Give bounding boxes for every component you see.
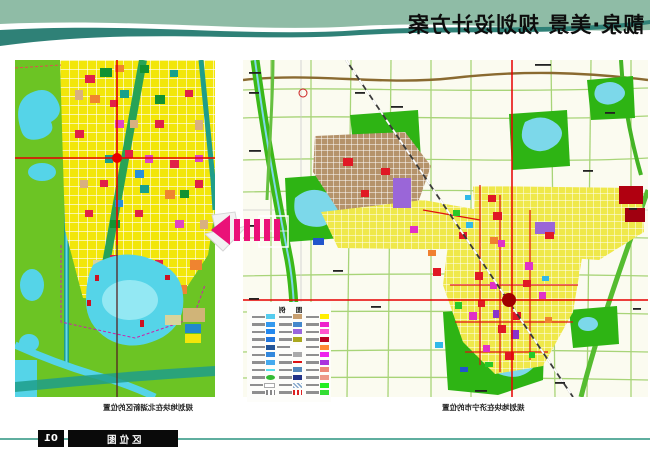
legend-entry <box>303 390 329 395</box>
legend-entry <box>276 322 302 327</box>
legend-label-bar <box>252 376 265 379</box>
legend-swatch <box>266 322 275 327</box>
legend-entry <box>303 352 329 357</box>
legend-label-bar <box>306 354 319 357</box>
transfer-arrow-icon <box>203 210 291 252</box>
legend-entry <box>249 390 275 395</box>
legend-label-bar <box>306 346 319 349</box>
legend-swatch <box>320 383 329 388</box>
legend-entry <box>249 345 275 350</box>
legend-row <box>247 313 331 321</box>
legend-rows <box>247 313 331 397</box>
legend-entry <box>249 352 275 357</box>
right-map-caption: 规划地块在济宁市的位置 <box>408 402 558 413</box>
legend-label-bar <box>279 323 292 326</box>
right-map-target-dot <box>502 293 516 307</box>
legend-label-bar <box>252 331 265 334</box>
legend-label-bar <box>252 323 265 326</box>
legend-row <box>247 389 331 397</box>
legend-entry <box>303 360 329 365</box>
legend-swatch <box>266 345 275 350</box>
legend-label-bar <box>306 361 319 364</box>
legend-row <box>247 343 331 351</box>
legend-entry <box>249 322 275 327</box>
legend-label-bar <box>306 338 319 341</box>
legend-row <box>247 321 331 329</box>
legend-swatch <box>293 375 302 380</box>
legend-label-bar <box>279 354 292 357</box>
section-title-badge: 区位图 <box>68 430 178 447</box>
legend-entry <box>276 314 302 319</box>
legend-title: 图 例 <box>247 302 331 313</box>
legend-label-bar <box>306 376 319 379</box>
legend-swatch <box>293 314 302 319</box>
legend-label-bar <box>306 323 319 326</box>
legend-entry <box>249 383 275 388</box>
legend-row <box>247 366 331 374</box>
legend-entry <box>303 322 329 327</box>
legend-label-bar <box>252 361 265 364</box>
legend-label-bar <box>277 346 290 349</box>
legend-entry <box>249 337 275 342</box>
legend-entry <box>303 367 329 372</box>
legend-swatch <box>266 375 275 380</box>
page-title: 靓泉·美景 规划设计方案 <box>407 9 644 39</box>
map-legend: 图 例 <box>247 302 331 402</box>
legend-swatch <box>293 329 302 334</box>
legend-entry <box>303 314 329 319</box>
legend-label-bar <box>279 369 292 372</box>
legend-swatch <box>266 314 275 319</box>
legend-label-bar <box>279 331 292 334</box>
legend-label-bar <box>306 384 319 387</box>
legend-swatch <box>264 383 275 388</box>
legend-entry <box>276 361 302 364</box>
page-number-badge: 01 <box>38 430 64 447</box>
legend-entry <box>249 369 275 372</box>
legend-label-bar <box>306 369 319 372</box>
legend-label-bar <box>252 346 265 349</box>
legend-label-bar <box>279 361 292 364</box>
legend-entry <box>276 337 302 342</box>
legend-label-bar <box>306 331 319 334</box>
legend-swatch <box>293 361 302 363</box>
legend-entry <box>276 367 302 372</box>
legend-row <box>247 359 331 367</box>
legend-swatch <box>266 369 275 371</box>
legend-entry <box>303 345 329 350</box>
legend-entry <box>276 345 302 350</box>
legend-entry <box>303 337 329 342</box>
legend-entry <box>276 329 302 334</box>
legend-swatch <box>266 352 275 357</box>
legend-swatch <box>320 314 329 319</box>
legend-row <box>247 336 331 344</box>
legend-swatch <box>320 352 329 357</box>
legend-swatch <box>293 337 302 342</box>
legend-swatch <box>320 345 329 350</box>
left-map-caption: 规划地块在北湖新区的位置 <box>73 402 223 413</box>
legend-swatch <box>320 390 329 395</box>
transfer-arrow <box>203 210 291 252</box>
legend-swatch <box>293 390 302 395</box>
legend-entry <box>249 360 275 365</box>
legend-label-bar <box>279 376 292 379</box>
legend-swatch <box>320 322 329 327</box>
legend-row <box>247 351 331 359</box>
legend-label-bar <box>279 316 292 319</box>
legend-label-bar <box>279 338 292 341</box>
legend-swatch <box>293 322 302 327</box>
legend-entry <box>249 375 275 380</box>
legend-swatch <box>266 337 275 342</box>
legend-label-bar <box>252 354 265 357</box>
legend-entry <box>303 375 329 380</box>
legend-label-bar <box>252 369 265 372</box>
legend-swatch <box>266 390 275 395</box>
legend-entry <box>249 314 275 319</box>
legend-row <box>247 381 331 389</box>
legend-swatch <box>266 360 275 365</box>
legend-swatch <box>320 375 329 380</box>
legend-swatch <box>320 367 329 372</box>
legend-swatch <box>320 337 329 342</box>
left-map-target-dot <box>112 153 122 163</box>
legend-entry <box>249 329 275 334</box>
page: 靓泉·美景 规划设计方案 <box>0 0 650 458</box>
legend-entry <box>303 329 329 334</box>
legend-swatch <box>293 367 302 372</box>
page-title-text: 靓泉·美景 规划设计方案 <box>407 9 644 39</box>
legend-row <box>247 328 331 336</box>
legend-entry <box>276 383 302 388</box>
left-map <box>15 60 215 397</box>
legend-entry <box>276 375 302 380</box>
legend-swatch <box>293 383 302 388</box>
legend-entry <box>276 390 302 395</box>
legend-row <box>247 374 331 382</box>
legend-label-bar <box>252 338 265 341</box>
legend-entry <box>303 383 329 388</box>
legend-swatch <box>291 345 302 350</box>
legend-swatch <box>320 329 329 334</box>
legend-label-bar <box>279 391 292 394</box>
legend-label-bar <box>250 384 263 387</box>
legend-entry <box>276 352 302 357</box>
legend-label-bar <box>279 384 292 387</box>
legend-label-bar <box>252 391 265 394</box>
legend-swatch <box>293 352 302 357</box>
legend-label-bar <box>306 391 319 394</box>
legend-swatch <box>266 329 275 334</box>
legend-label-bar <box>252 316 265 319</box>
legend-swatch <box>320 360 329 365</box>
legend-label-bar <box>306 316 319 319</box>
